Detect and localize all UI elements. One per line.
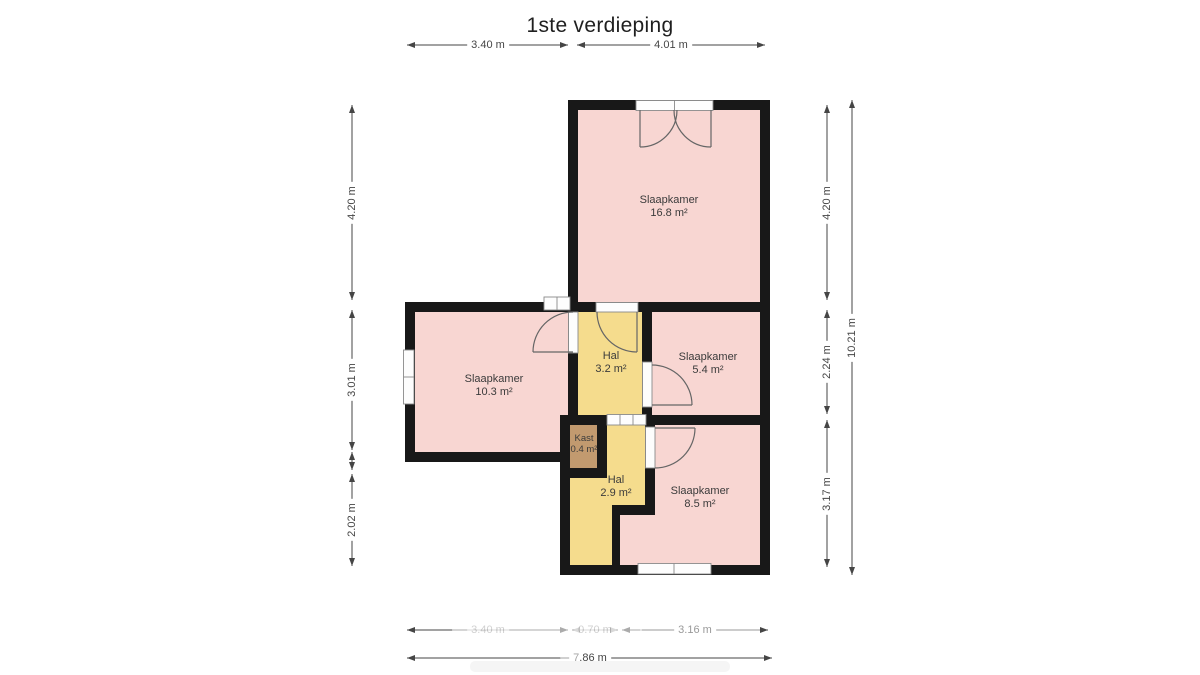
- room-area: 16.8 m²: [640, 207, 699, 220]
- label-hal-29: Hal 2.9 m²: [600, 474, 631, 500]
- dim-bottom-2: 0.70 m: [574, 624, 616, 636]
- dim-left-3: 2.02 m: [346, 499, 358, 541]
- room-name: Hal: [600, 474, 631, 487]
- dim-bottom-total: 7.86 m: [569, 652, 611, 664]
- dim-left-1: 4.20 m: [346, 182, 358, 224]
- room-area: 3.2 m²: [595, 363, 626, 376]
- label-hal-32: Hal 3.2 m²: [595, 350, 626, 376]
- dim-right-total: 10.21 m: [846, 314, 858, 362]
- dim-bottom-3: 3.16 m: [674, 624, 716, 636]
- floorplan-page: 1ste verdieping: [0, 0, 1200, 675]
- room-area: 5.4 m²: [679, 364, 738, 377]
- room-area: 0.4 m²: [571, 444, 598, 455]
- room-name: Kast: [571, 433, 598, 444]
- room-name: Slaapkamer: [465, 373, 524, 386]
- room-area: 2.9 m²: [600, 487, 631, 500]
- label-kast: Kast 0.4 m²: [571, 433, 598, 455]
- dim-top-1: 3.40 m: [467, 39, 509, 51]
- dim-bottom-1: 3.40 m: [467, 624, 509, 636]
- room-name: Slaapkamer: [679, 351, 738, 364]
- dim-right-1: 4.20 m: [821, 182, 833, 224]
- label-slaapkamer-54: Slaapkamer 5.4 m²: [679, 351, 738, 377]
- label-slaapkamer-85: Slaapkamer 8.5 m²: [671, 485, 730, 511]
- room-area: 8.5 m²: [671, 498, 730, 511]
- room-name: Hal: [595, 350, 626, 363]
- room-area: 10.3 m²: [465, 386, 524, 399]
- label-slaapkamer-103: Slaapkamer 10.3 m²: [465, 373, 524, 399]
- room-name: Slaapkamer: [671, 485, 730, 498]
- room-name: Slaapkamer: [640, 194, 699, 207]
- room-slaapkamer-103: [415, 312, 568, 415]
- room-slaapkamer-85-notch: [620, 515, 760, 565]
- label-slaapkamer-168: Slaapkamer 16.8 m²: [640, 194, 699, 220]
- dim-top-2: 4.01 m: [650, 39, 692, 51]
- dim-right-3: 3.17 m: [821, 473, 833, 515]
- page-title: 1ste verdieping: [0, 14, 1200, 38]
- dim-left-2: 3.01 m: [346, 359, 358, 401]
- room-slaapkamer-103-lower: [415, 415, 560, 452]
- dim-right-2: 2.24 m: [821, 341, 833, 383]
